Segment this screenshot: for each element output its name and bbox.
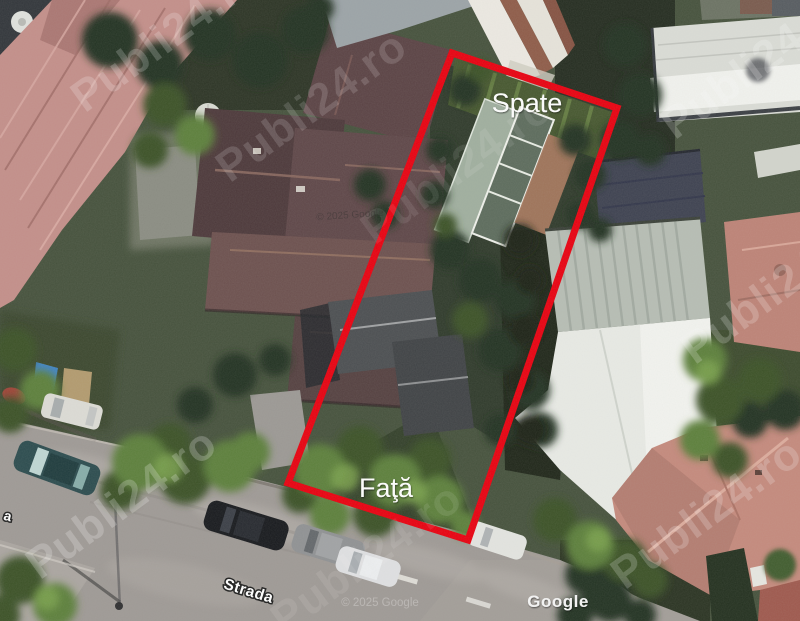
listing-photo-viewer: Publi24.ro Publi24.ro Publi24.ro Publi24… — [0, 0, 800, 621]
satellite-aerial-image: Publi24.ro Publi24.ro Publi24.ro Publi24… — [0, 0, 800, 621]
grain-overlay — [0, 0, 800, 621]
